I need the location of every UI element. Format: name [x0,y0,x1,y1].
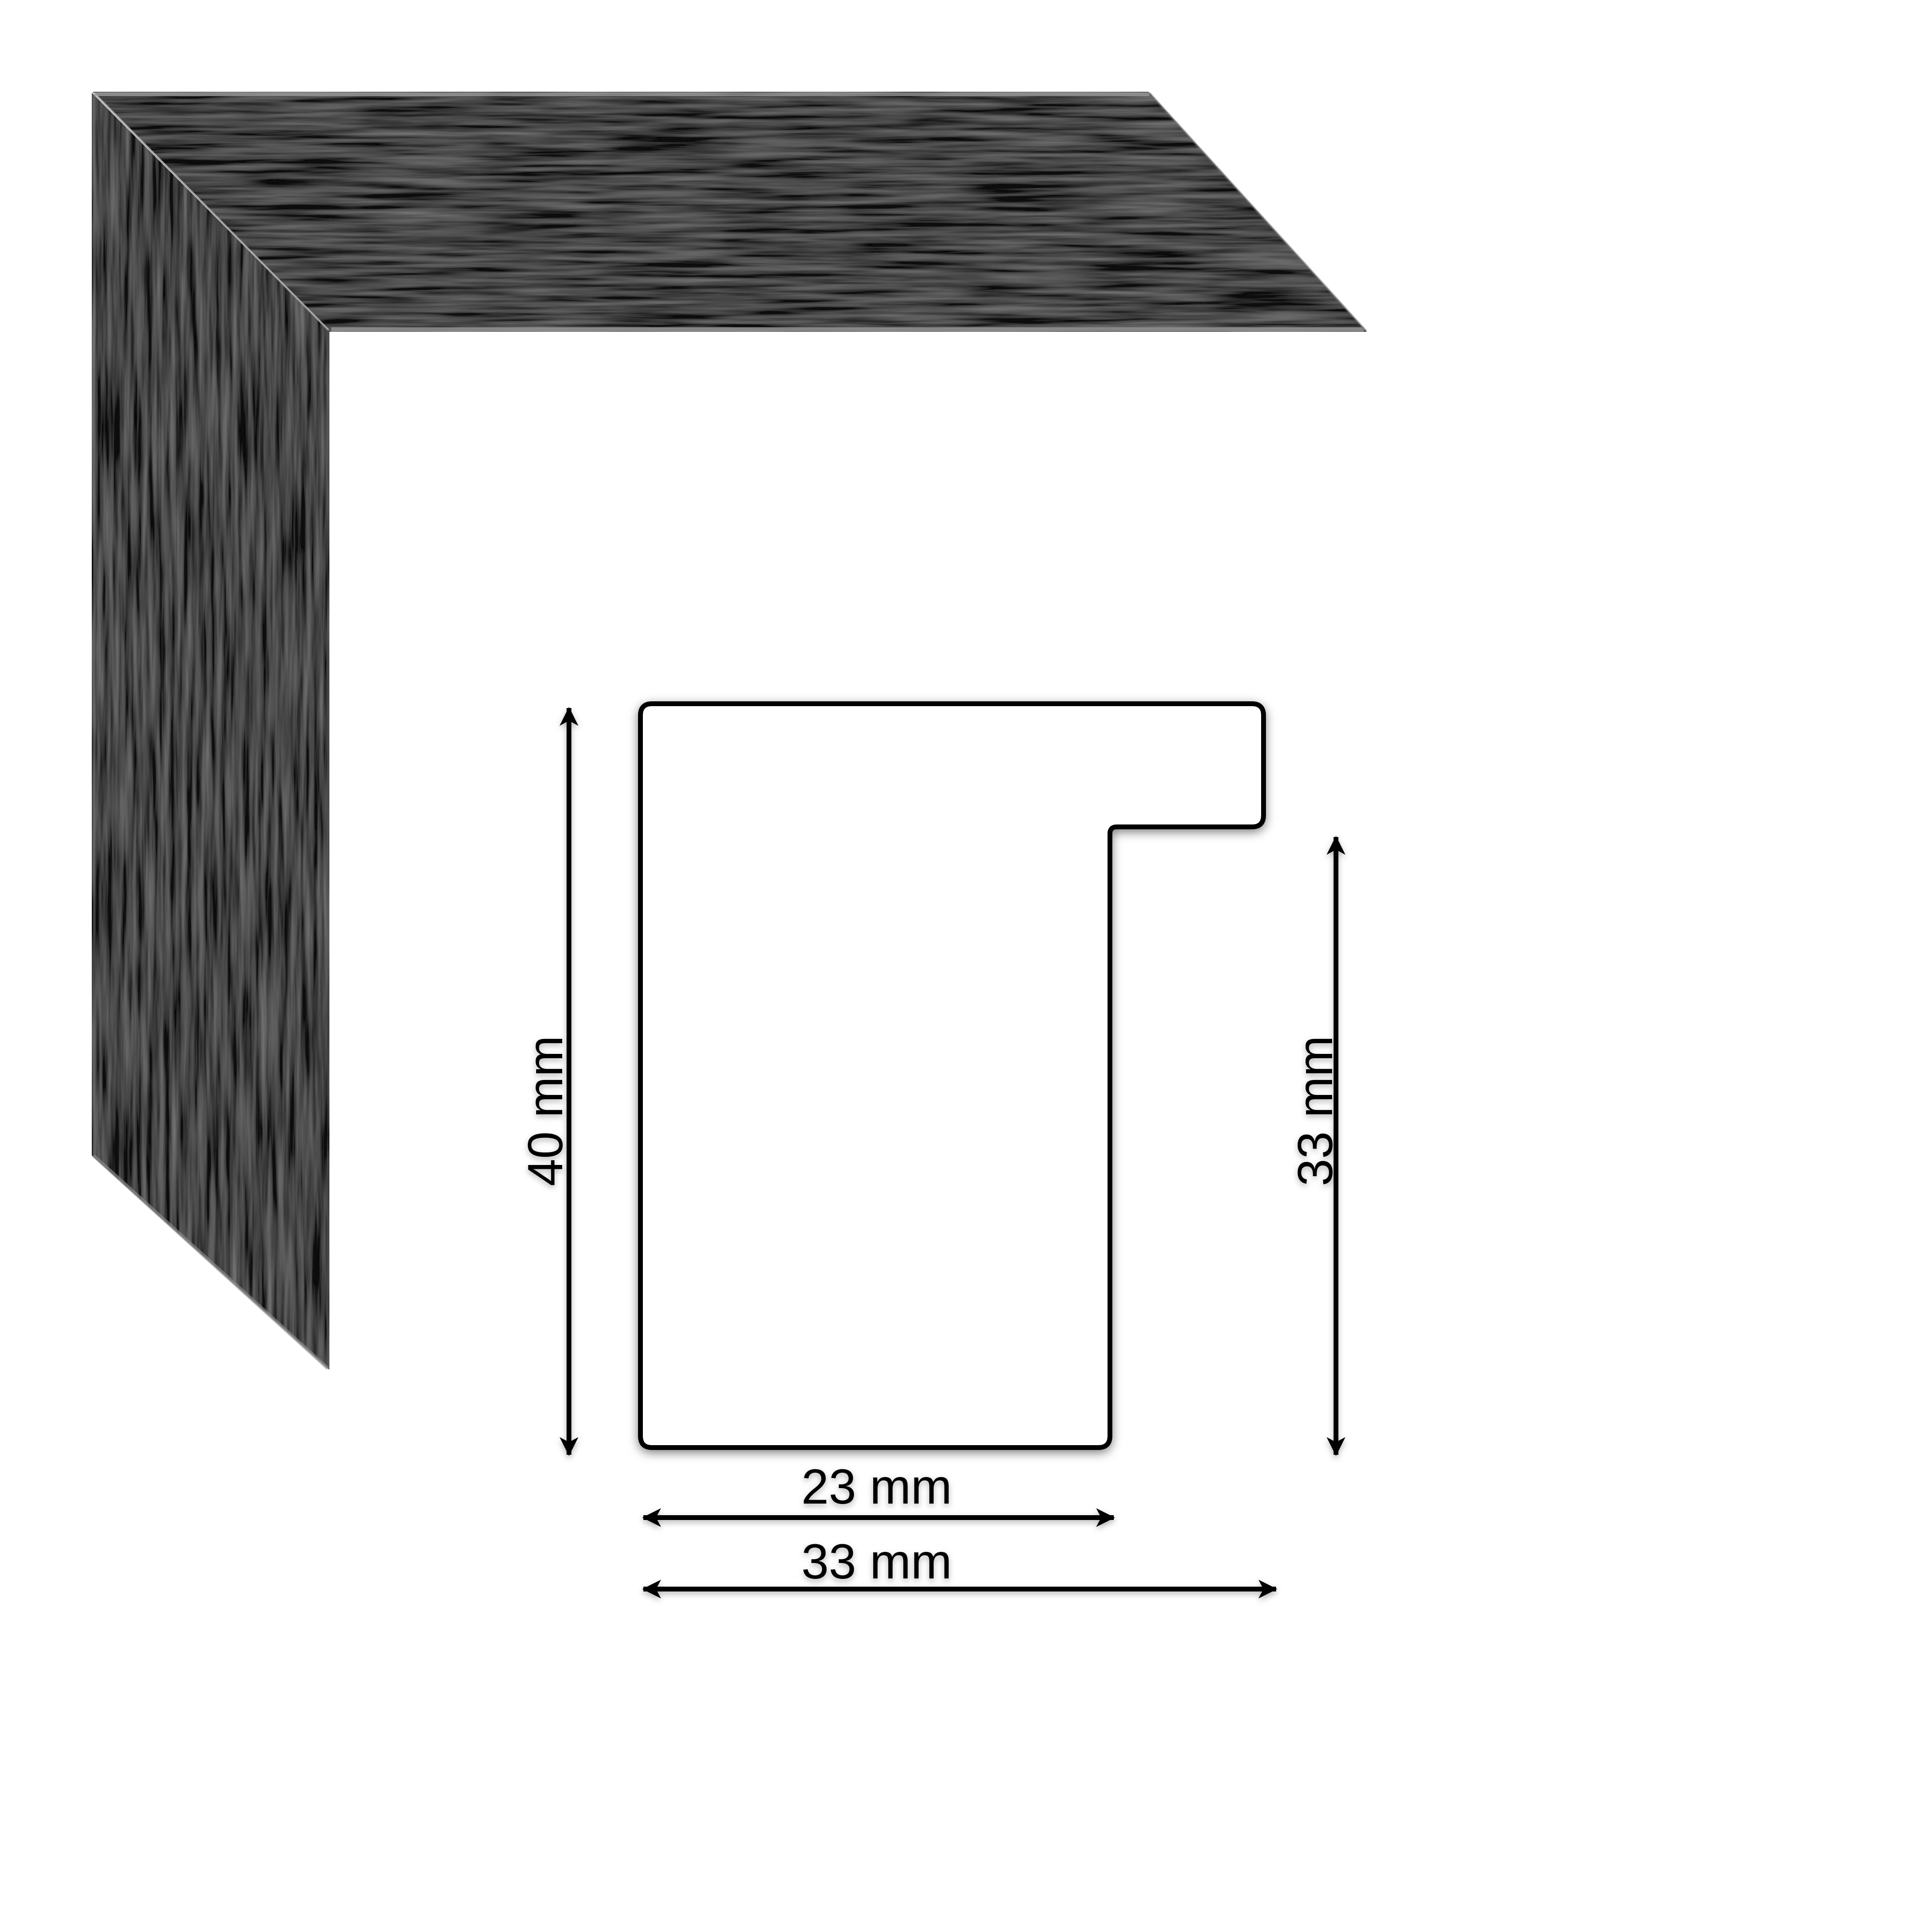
dim-rabbet-height: 33 mm [1288,837,1343,1455]
dim-total-width: 33 mm [643,1534,1276,1589]
dim-total-height: 40 mm [518,708,573,1455]
dim-total-width-label: 33 mm [801,1534,952,1589]
profile-diagram: 40 mm 33 mm 23 mm 33 mm [518,704,1343,1589]
dim-face-width: 23 mm [643,1459,1114,1518]
dim-rabbet-height-label: 33 mm [1288,1036,1343,1186]
molding-profile-outline [640,704,1264,1448]
moulding-profile-canvas: 40 mm 33 mm 23 mm 33 mm [0,0,1932,1932]
dim-total-height-label: 40 mm [518,1036,573,1186]
dim-face-width-label: 23 mm [801,1459,952,1514]
product-image: 40 mm 33 mm 23 mm 33 mm [0,0,1932,1932]
